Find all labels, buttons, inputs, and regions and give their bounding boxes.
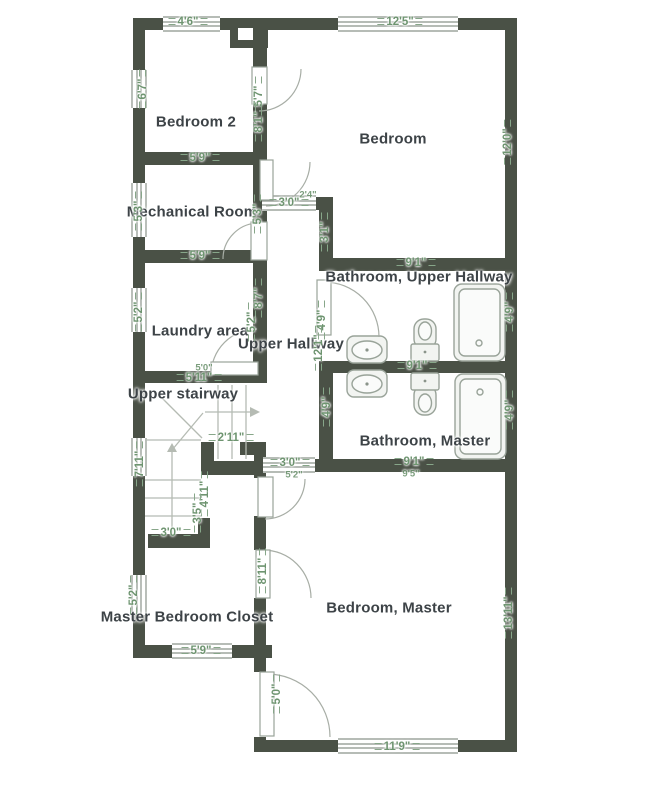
sink-master-icon <box>347 370 387 397</box>
window <box>131 575 147 615</box>
wall-stair-bottom-stub <box>198 518 210 548</box>
door-laundry <box>211 329 258 375</box>
window <box>131 438 147 476</box>
bathtub-master-icon <box>455 374 506 459</box>
bathtub-upper-icon <box>454 284 505 361</box>
wall-right <box>505 18 517 752</box>
stair-arrow-right <box>250 407 260 417</box>
wall-stair-horizontal <box>201 461 263 475</box>
wall-master-left-c <box>254 598 266 672</box>
window <box>172 643 232 659</box>
wall-center-upper <box>253 48 267 68</box>
chimney-flue <box>238 28 253 40</box>
door-master-lower <box>260 672 330 737</box>
windows <box>131 16 458 754</box>
wall-mech-bottom <box>133 250 267 263</box>
doors <box>211 67 379 737</box>
staircase <box>145 385 252 534</box>
toilet-upper-icon <box>411 319 439 361</box>
toilet-master-icon <box>411 373 439 415</box>
door-bedroom <box>252 67 301 111</box>
wall-master-left-b <box>254 516 266 550</box>
door-bathroom-upper <box>317 280 379 337</box>
window <box>338 738 458 754</box>
window <box>131 183 147 237</box>
window <box>338 16 458 32</box>
stair-winder-line <box>160 396 202 438</box>
window <box>263 457 315 473</box>
door-master-upper <box>258 477 305 519</box>
sink-upper-icon <box>347 336 387 363</box>
wall-bedroom-bottom <box>319 258 517 271</box>
window <box>163 16 220 32</box>
wall-hallway-right-lower <box>319 361 333 472</box>
wall-hallway-right-upper <box>319 210 333 260</box>
stair-arrow-up <box>167 443 177 452</box>
window <box>131 288 147 332</box>
wall-bedroom2-bottom <box>133 152 267 165</box>
wall-left <box>133 18 145 658</box>
floor-plan-drawing <box>0 0 650 798</box>
wall-master-left-d <box>254 737 266 752</box>
floor-plan: Bedroom 2BedroomMechanical RoomBathroom,… <box>0 0 650 798</box>
door-master-closet <box>256 550 311 598</box>
window <box>131 70 147 108</box>
